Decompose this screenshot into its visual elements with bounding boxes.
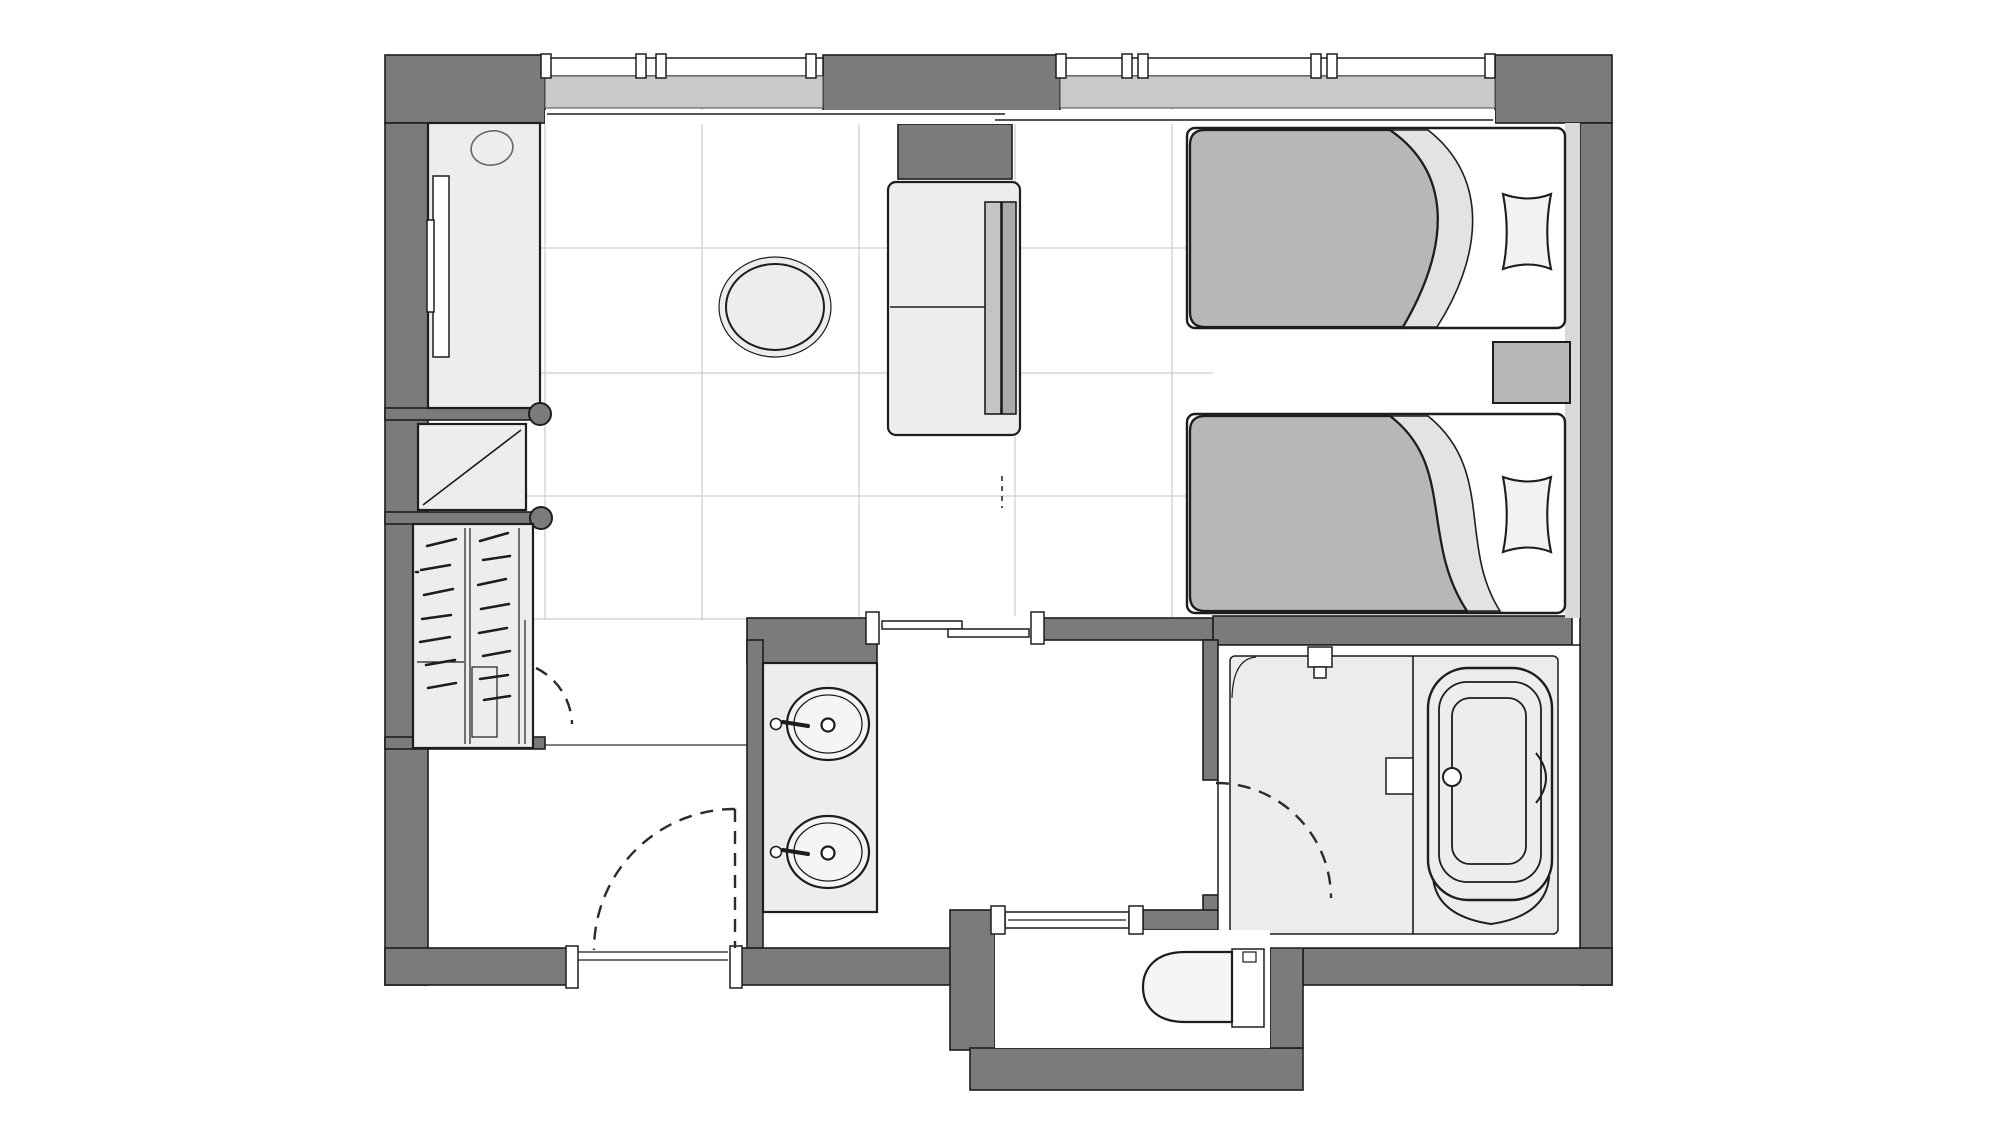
wall-bottom-left [385,948,573,985]
wall-window-pier [823,55,1060,112]
toilet-bowl [1143,952,1232,1022]
drain-2 [822,847,835,860]
drain-1 [822,719,835,732]
toilet-tank [1232,949,1264,1027]
wall-stub-rack [385,512,548,524]
toilet [1143,949,1264,1027]
wall-stub-knob-1 [529,403,551,425]
wall-toilet-bottom [970,1048,1303,1090]
door-jamb-right [730,946,742,988]
tile-floor-grid [428,95,1213,620]
entrance-door-swing [594,809,735,950]
bed-1-duvet [1190,130,1438,327]
wall-right [1580,123,1612,985]
entrance-door [566,809,742,988]
wall-pier-stem [898,124,1012,179]
sliding-door-main [866,612,1044,644]
window-right [1056,54,1495,108]
floor-plan-canvas: Top-down monochrome floor plan drawing w… [0,0,2000,1125]
sliding-door-toilet [991,906,1143,934]
twin-bed-2 [1187,414,1565,613]
sofa [888,182,1020,435]
pillow-2 [1503,477,1551,552]
wall-tv-mount [427,220,434,312]
round-table [719,257,831,357]
wall-bath-door-stub-upper [1203,640,1218,780]
bathroom [1218,645,1580,948]
window-left [541,54,823,108]
wall-top-left-corner [385,55,545,123]
nightstand [1493,342,1570,403]
sofa-backrest-inner [985,202,1001,414]
pillow-1 [1503,194,1551,269]
bathtub [1428,668,1552,924]
luggage-rack [418,424,526,510]
wardrobe-with-hangers [413,524,533,748]
wall-vanity-top [747,618,877,663]
wall-bath-top [1213,616,1572,645]
desk-cabinet [427,123,540,408]
closet-door-swing [536,668,572,724]
wall-vanity-left [747,640,763,948]
wall-bottom-bath [1303,948,1612,985]
tub-faucet [1443,768,1461,786]
sofa-backrest-outer [1002,202,1016,414]
door-jamb-left [566,946,578,988]
wall-tv [433,176,449,357]
wall-stub-desk [385,408,545,420]
wall-top-right-corner [1495,55,1612,123]
curtain-track [545,110,1495,124]
floor-plan-svg: Top-down monochrome floor plan drawing w… [0,0,2000,1125]
bath-shelf [1386,758,1413,794]
twin-bed-1 [1187,128,1565,328]
wall-toilet-left [950,910,995,1050]
wall-corridor-top [1033,618,1213,640]
